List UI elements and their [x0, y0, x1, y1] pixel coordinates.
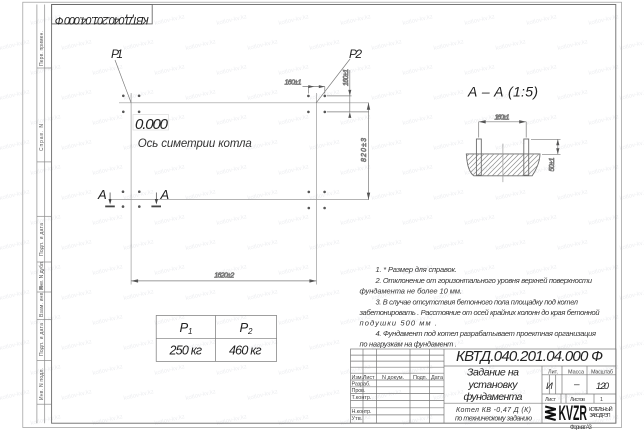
svg-text:kotlov-kv.kz: kotlov-kv.kz: [557, 139, 588, 152]
svg-text:kotlov-kv.kz: kotlov-kv.kz: [464, 64, 495, 77]
svg-text:фундамента: фундамента: [464, 391, 523, 403]
svg-text:Ось симетрии котла: Ось симетрии котла: [138, 138, 252, 150]
svg-text:kotlov-kv.kz: kotlov-kv.kz: [61, 39, 92, 52]
svg-text:kotlov-kv.kz: kotlov-kv.kz: [185, 289, 216, 302]
svg-text:kotlov-kv.kz: kotlov-kv.kz: [61, 189, 92, 202]
svg-text:kotlov-kv.kz: kotlov-kv.kz: [185, 239, 216, 252]
svg-text:Инв. N дубл.: Инв. N дубл.: [39, 261, 45, 290]
svg-text:kotlov-kv.kz: kotlov-kv.kz: [278, 414, 309, 427]
svg-text:установку: установку: [468, 379, 519, 391]
svg-text:4. Фундамент под котел разраб: 4. Фундамент под котел разрабатывает про…: [376, 329, 597, 338]
svg-text:Разраб.: Разраб.: [352, 381, 371, 387]
svg-text:kotlov-kv.kz: kotlov-kv.kz: [495, 239, 526, 252]
svg-text:kotlov-kv.kz: kotlov-kv.kz: [216, 364, 247, 377]
svg-text:1620±2: 1620±2: [214, 273, 234, 280]
svg-text:kotlov-kv.kz: kotlov-kv.kz: [402, 14, 433, 27]
svg-text:kotlov-kv.kz: kotlov-kv.kz: [619, 239, 644, 252]
svg-text:kotlov-kv.kz: kotlov-kv.kz: [278, 314, 309, 327]
svg-text:kotlov-kv.kz: kotlov-kv.kz: [61, 0, 92, 2]
svg-text:kotlov-kv.kz: kotlov-kv.kz: [92, 114, 123, 127]
svg-text:забетонировать . Расстояние от: забетонировать . Расстояние от осей край…: [359, 308, 601, 317]
svg-text:kotlov-kv.kz: kotlov-kv.kz: [92, 214, 123, 227]
svg-text:1: 1: [600, 397, 603, 403]
svg-text:Подп.: Подп.: [413, 375, 427, 381]
svg-text:kotlov-kv.kz: kotlov-kv.kz: [557, 239, 588, 252]
svg-text:Лист: Лист: [545, 397, 556, 403]
svg-text:kotlov-kv.kz: kotlov-kv.kz: [526, 214, 557, 227]
svg-text:Перв. примен.: Перв. примен.: [39, 31, 45, 66]
svg-text:kotlov-kv.kz: kotlov-kv.kz: [433, 389, 464, 402]
svg-text:kotlov-kv.kz: kotlov-kv.kz: [557, 189, 588, 202]
svg-text:kotlov-kv.kz: kotlov-kv.kz: [92, 414, 123, 427]
svg-text:kotlov-kv.kz: kotlov-kv.kz: [495, 139, 526, 152]
svg-text:kotlov-kv.kz: kotlov-kv.kz: [154, 214, 185, 227]
svg-text:kotlov-kv.kz: kotlov-kv.kz: [123, 0, 154, 2]
svg-text:kotlov-kv.kz: kotlov-kv.kz: [464, 114, 495, 127]
svg-text:kotlov-kv.kz: kotlov-kv.kz: [588, 214, 619, 227]
svg-text:kotlov-kv.kz: kotlov-kv.kz: [247, 389, 278, 402]
svg-text:kotlov-kv.kz: kotlov-kv.kz: [92, 164, 123, 177]
svg-text:kotlov-kv.kz: kotlov-kv.kz: [588, 264, 619, 277]
svg-text:kotlov-kv.kz: kotlov-kv.kz: [464, 214, 495, 227]
svg-text:kotlov-kv.kz: kotlov-kv.kz: [278, 114, 309, 127]
svg-text:kotlov-kv.kz: kotlov-kv.kz: [278, 264, 309, 277]
svg-text:kotlov-kv.kz: kotlov-kv.kz: [495, 0, 526, 2]
svg-text:kotlov-kv.kz: kotlov-kv.kz: [340, 164, 371, 177]
svg-text:kotlov-kv.kz: kotlov-kv.kz: [588, 114, 619, 127]
svg-text:по техническому заданию: по техническому заданию: [455, 414, 533, 422]
svg-text:kotlov-kv.kz: kotlov-kv.kz: [309, 339, 340, 352]
svg-text:0.000: 0.000: [135, 116, 169, 133]
svg-text:kotlov-kv.kz: kotlov-kv.kz: [371, 89, 402, 102]
svg-text:160±1: 160±1: [285, 80, 302, 87]
svg-text:1. * Размер для справок.: 1. * Размер для справок.: [376, 265, 458, 274]
svg-text:kotlov-kv.kz: kotlov-kv.kz: [278, 64, 309, 77]
svg-text:kotlov-kv.kz: kotlov-kv.kz: [402, 114, 433, 127]
svg-text:kotlov-kv.kz: kotlov-kv.kz: [309, 139, 340, 152]
svg-text:КВТД.040.201.04.000 Ф: КВТД.040.201.04.000 Ф: [456, 348, 603, 365]
svg-text:kotlov-kv.kz: kotlov-kv.kz: [495, 189, 526, 202]
svg-text:kotlov-kv.kz: kotlov-kv.kz: [464, 14, 495, 27]
svg-text:kotlov-kv.kz: kotlov-kv.kz: [371, 239, 402, 252]
svg-text:И: И: [546, 381, 553, 392]
svg-text:kotlov-kv.kz: kotlov-kv.kz: [61, 289, 92, 302]
svg-text:kotlov-kv.kz: kotlov-kv.kz: [30, 314, 61, 327]
svg-text:820±3: 820±3: [361, 138, 368, 162]
svg-text:kotlov-kv.kz: kotlov-kv.kz: [154, 364, 185, 377]
svg-text:kotlov-kv.kz: kotlov-kv.kz: [371, 0, 402, 2]
svg-text:kotlov-kv.kz: kotlov-kv.kz: [247, 139, 278, 152]
svg-text:kotlov-kv.kz: kotlov-kv.kz: [216, 114, 247, 127]
svg-text:kotlov-kv.kz: kotlov-kv.kz: [619, 389, 644, 402]
svg-text:–: –: [573, 380, 580, 391]
svg-text:Формат А3: Формат А3: [570, 425, 593, 430]
svg-text:kotlov-kv.kz: kotlov-kv.kz: [309, 289, 340, 302]
svg-text:kotlov-kv.kz: kotlov-kv.kz: [154, 264, 185, 277]
svg-text:Пров.: Пров.: [352, 388, 366, 394]
svg-text:kotlov-kv.kz: kotlov-kv.kz: [247, 39, 278, 52]
svg-text:Дата: Дата: [431, 375, 444, 381]
svg-text:kotlov-kv.kz: kotlov-kv.kz: [309, 389, 340, 402]
svg-text:kotlov-kv.kz: kotlov-kv.kz: [92, 364, 123, 377]
svg-text:kotlov-kv.kz: kotlov-kv.kz: [154, 64, 185, 77]
svg-text:kotlov-kv.kz: kotlov-kv.kz: [371, 389, 402, 402]
svg-text:kotlov-kv.kz: kotlov-kv.kz: [433, 0, 464, 2]
svg-text:kotlov-kv.kz: kotlov-kv.kz: [247, 189, 278, 202]
svg-text:kotlov-kv.kz: kotlov-kv.kz: [619, 39, 644, 52]
svg-text:kotlov-kv.kz: kotlov-kv.kz: [278, 14, 309, 27]
svg-text:kotlov-kv.kz: kotlov-kv.kz: [433, 89, 464, 102]
svg-text:КВТД.040.201.04.000 Ф: КВТД.040.201.04.000 Ф: [55, 14, 149, 26]
svg-text:Утв.: Утв.: [352, 416, 363, 422]
svg-text:kotlov-kv.kz: kotlov-kv.kz: [30, 264, 61, 277]
svg-text:Лит.: Лит.: [548, 370, 558, 376]
svg-text:kotlov-kv.kz: kotlov-kv.kz: [154, 14, 185, 27]
svg-text:Задание на: Задание на: [467, 367, 519, 379]
svg-text:kotlov-kv.kz: kotlov-kv.kz: [433, 189, 464, 202]
svg-text:kotlov-kv.kz: kotlov-kv.kz: [309, 0, 340, 2]
svg-text:N докум.: N докум.: [382, 375, 404, 381]
svg-text:kotlov-kv.kz: kotlov-kv.kz: [61, 389, 92, 402]
svg-text:kotlov-kv.kz: kotlov-kv.kz: [247, 239, 278, 252]
svg-text:Подп. и дата: Подп. и дата: [39, 323, 45, 356]
svg-text:250 кг: 250 кг: [169, 344, 203, 358]
svg-text:kotlov-kv.kz: kotlov-kv.kz: [371, 139, 402, 152]
svg-text:kotlov-kv.kz: kotlov-kv.kz: [433, 239, 464, 252]
svg-text:kotlov-kv.kz: kotlov-kv.kz: [588, 14, 619, 27]
svg-text:kotlov-kv.kz: kotlov-kv.kz: [61, 339, 92, 352]
svg-text:kotlov-kv.kz: kotlov-kv.kz: [123, 339, 154, 352]
svg-text:1: 1: [188, 327, 192, 336]
svg-text:kotlov-kv.kz: kotlov-kv.kz: [0, 139, 31, 152]
svg-text:kotlov-kv.kz: kotlov-kv.kz: [30, 114, 61, 127]
svg-text:kotlov-kv.kz: kotlov-kv.kz: [371, 189, 402, 202]
svg-text:kotlov-kv.kz: kotlov-kv.kz: [30, 364, 61, 377]
svg-text:kotlov-kv.kz: kotlov-kv.kz: [0, 389, 31, 402]
svg-text:kotlov-kv.kz: kotlov-kv.kz: [61, 89, 92, 102]
svg-text:kotlov-kv.kz: kotlov-kv.kz: [557, 89, 588, 102]
svg-text:kotlov-kv.kz: kotlov-kv.kz: [619, 139, 644, 152]
svg-text:kotlov-kv.kz: kotlov-kv.kz: [619, 89, 644, 102]
svg-text:160±1: 160±1: [495, 115, 510, 122]
svg-text:Справ. N: Справ. N: [39, 124, 45, 151]
svg-text:kotlov-kv.kz: kotlov-kv.kz: [92, 264, 123, 277]
svg-text:2: 2: [247, 327, 253, 336]
svg-text:Масштаб: Масштаб: [591, 370, 613, 376]
svg-text:kotlov-kv.kz: kotlov-kv.kz: [0, 289, 31, 302]
svg-text:kotlov-kv.kz: kotlov-kv.kz: [154, 164, 185, 177]
svg-text:kotlov-kv.kz: kotlov-kv.kz: [0, 339, 31, 352]
svg-text:kotlov-kv.kz: kotlov-kv.kz: [619, 289, 644, 302]
svg-text:kotlov-kv.kz: kotlov-kv.kz: [185, 189, 216, 202]
svg-text:А – А (1:5): А – А (1:5): [467, 84, 538, 100]
svg-text:kotlov-kv.kz: kotlov-kv.kz: [309, 239, 340, 252]
svg-text:Подп. и дата: Подп. и дата: [39, 223, 45, 256]
svg-text:Т.контр.: Т.контр.: [352, 395, 372, 401]
svg-text:kotlov-kv.kz: kotlov-kv.kz: [30, 64, 61, 77]
svg-text:kotlov-kv.kz: kotlov-kv.kz: [619, 0, 644, 2]
svg-text:kotlov-kv.kz: kotlov-kv.kz: [340, 14, 371, 27]
svg-text:kotlov-kv.kz: kotlov-kv.kz: [0, 239, 31, 252]
svg-text:kotlov-kv.kz: kotlov-kv.kz: [402, 414, 433, 427]
svg-text:kotlov-kv.kz: kotlov-kv.kz: [309, 39, 340, 52]
svg-text:kotlov-kv.kz: kotlov-kv.kz: [526, 114, 557, 127]
svg-text:kotlov-kv.kz: kotlov-kv.kz: [61, 239, 92, 252]
svg-text:kotlov-kv.kz: kotlov-kv.kz: [402, 64, 433, 77]
svg-text:kotlov-kv.kz: kotlov-kv.kz: [216, 214, 247, 227]
svg-text:kotlov-kv.kz: kotlov-kv.kz: [433, 139, 464, 152]
svg-text:P2: P2: [349, 47, 362, 61]
svg-text:kotlov-kv.kz: kotlov-kv.kz: [216, 64, 247, 77]
svg-text:kotlov-kv.kz: kotlov-kv.kz: [123, 239, 154, 252]
svg-text:1:20: 1:20: [596, 381, 609, 391]
svg-text:50±1: 50±1: [549, 157, 556, 171]
svg-text:kotlov-kv.kz: kotlov-kv.kz: [526, 64, 557, 77]
svg-text:kotlov-kv.kz: kotlov-kv.kz: [30, 164, 61, 177]
svg-text:P1: P1: [111, 47, 123, 61]
svg-text:kotlov-kv.kz: kotlov-kv.kz: [247, 0, 278, 2]
svg-text:kotlov-kv.kz: kotlov-kv.kz: [123, 389, 154, 402]
svg-text:ЗАВОД РЭП: ЗАВОД РЭП: [590, 413, 611, 419]
svg-text:подушки 500 мм .: подушки 500 мм .: [360, 319, 438, 328]
svg-text:kotlov-kv.kz: kotlov-kv.kz: [92, 314, 123, 327]
svg-text:kotlov-kv.kz: kotlov-kv.kz: [0, 0, 31, 2]
svg-text:Масса: Масса: [568, 370, 585, 376]
svg-text:kotlov-kv.kz: kotlov-kv.kz: [278, 164, 309, 177]
svg-text:kotlov-kv.kz: kotlov-kv.kz: [278, 364, 309, 377]
svg-text:kotlov-kv.kz: kotlov-kv.kz: [216, 164, 247, 177]
svg-text:160±1: 160±1: [343, 69, 350, 86]
svg-text:kotlov-kv.kz: kotlov-kv.kz: [185, 89, 216, 102]
svg-text:А: А: [97, 187, 107, 202]
svg-text:kotlov-kv.kz: kotlov-kv.kz: [619, 339, 644, 352]
svg-text:kotlov-kv.kz: kotlov-kv.kz: [402, 164, 433, 177]
svg-text:kotlov-kv.kz: kotlov-kv.kz: [0, 189, 31, 202]
svg-text:kotlov-kv.kz: kotlov-kv.kz: [340, 264, 371, 277]
svg-text:kotlov-kv.kz: kotlov-kv.kz: [154, 414, 185, 427]
svg-text:kotlov-kv.kz: kotlov-kv.kz: [185, 0, 216, 2]
svg-text:kotlov-kv.kz: kotlov-kv.kz: [30, 414, 61, 427]
svg-text:kotlov-kv.kz: kotlov-kv.kz: [526, 14, 557, 27]
svg-text:kotlov-kv.kz: kotlov-kv.kz: [557, 39, 588, 52]
svg-text:kotlov-kv.kz: kotlov-kv.kz: [0, 89, 31, 102]
svg-text:kotlov-kv.kz: kotlov-kv.kz: [402, 214, 433, 227]
svg-text:kotlov-kv.kz: kotlov-kv.kz: [278, 214, 309, 227]
svg-text:kotlov-kv.kz: kotlov-kv.kz: [340, 214, 371, 227]
svg-text:kotlov-kv.kz: kotlov-kv.kz: [371, 39, 402, 52]
svg-text:kotlov-kv.kz: kotlov-kv.kz: [185, 389, 216, 402]
svg-text:kotlov-kv.kz: kotlov-kv.kz: [557, 0, 588, 2]
svg-text:Инв. N подл.: Инв. N подл.: [39, 368, 45, 400]
svg-text:KVZR: KVZR: [559, 402, 588, 425]
svg-text:3. В случае отсутствия бетонн: 3. В случае отсутствия бетонного пола пл…: [376, 298, 579, 307]
svg-text:kotlov-kv.kz: kotlov-kv.kz: [433, 39, 464, 52]
svg-text:kotlov-kv.kz: kotlov-kv.kz: [588, 164, 619, 177]
svg-text:kotlov-kv.kz: kotlov-kv.kz: [495, 39, 526, 52]
svg-text:Взам. инв. N: Взам. инв. N: [39, 286, 45, 317]
svg-text:А: А: [160, 187, 170, 202]
svg-text:kotlov-kv.kz: kotlov-kv.kz: [619, 189, 644, 202]
svg-text:kotlov-kv.kz: kotlov-kv.kz: [123, 289, 154, 302]
svg-text:kotlov-kv.kz: kotlov-kv.kz: [216, 14, 247, 27]
svg-text:kotlov-kv.kz: kotlov-kv.kz: [61, 139, 92, 152]
svg-text:фундамента не более 10 мм.: фундамента не более 10 мм.: [360, 287, 463, 296]
svg-text:kotlov-kv.kz: kotlov-kv.kz: [340, 114, 371, 127]
svg-text:kotlov-kv.kz: kotlov-kv.kz: [185, 39, 216, 52]
svg-text:Котел КВ -0,47 Д (К): Котел КВ -0,47 Д (К): [456, 407, 531, 414]
svg-text:kotlov-kv.kz: kotlov-kv.kz: [216, 414, 247, 427]
svg-text:kotlov-kv.kz: kotlov-kv.kz: [123, 39, 154, 52]
svg-text:kotlov-kv.kz: kotlov-kv.kz: [247, 89, 278, 102]
svg-text:kotlov-kv.kz: kotlov-kv.kz: [247, 289, 278, 302]
svg-text:Н.контр.: Н.контр.: [352, 409, 372, 415]
svg-text:Изм.Лист: Изм.Лист: [352, 375, 375, 381]
svg-text:по нагрузкам на фундамент .: по нагрузкам на фундамент .: [360, 340, 458, 349]
svg-text:2. Отклонение от горизонтальн: 2. Отклонение от горизонтального уровня …: [375, 276, 593, 285]
svg-text:kotlov-kv.kz: kotlov-kv.kz: [588, 64, 619, 77]
svg-text:kotlov-kv.kz: kotlov-kv.kz: [0, 39, 31, 52]
svg-text:460 кг: 460 кг: [229, 344, 262, 358]
